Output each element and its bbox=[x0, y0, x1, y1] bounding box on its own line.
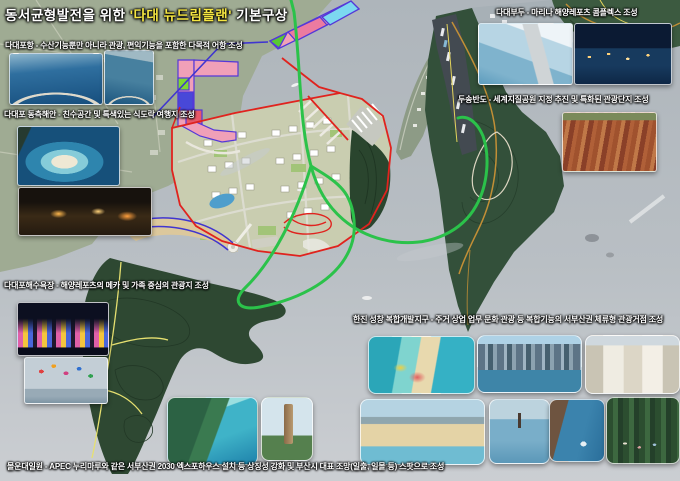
photo-observation-tower bbox=[261, 397, 313, 461]
photo-molundae-headland bbox=[167, 397, 258, 465]
photo-resort-waterpark bbox=[368, 336, 475, 394]
annotation-beach: 다대포해수욕장 - 해양레포츠의 메카 및 가족 중심의 관광지 조성 bbox=[4, 280, 209, 291]
page-title: 동서균형발전을 위한 '다대 뉴드림플랜' 기본구상 bbox=[5, 4, 288, 24]
photo-shopping-street bbox=[585, 335, 680, 394]
title-highlight: '다대 뉴드림플랜' bbox=[130, 8, 232, 23]
annotation-hanjin-seongchang: 한진 성창 복합개발지구 - 주거 상업 업무 문화 관광 등 복합기능의 서부… bbox=[353, 314, 663, 325]
annotation-east-coast: 다대포 동측해안 - 친수공간 및 특색있는 식도락 여행지 조성 bbox=[4, 109, 194, 120]
photo-marina-skyline bbox=[477, 335, 582, 393]
photo-dadaepo-harbor-aerial bbox=[9, 53, 103, 105]
photo-sunset-fountain bbox=[17, 302, 109, 356]
photo-harbor-vertical-aerial bbox=[104, 50, 154, 105]
photo-night-food-street bbox=[18, 187, 152, 236]
photo-kite-surfing bbox=[24, 357, 108, 404]
title-suffix: 기본구상 bbox=[232, 8, 288, 23]
annotation-dusong-peninsula: 두송반도 - 세계지질공원 지정 추진 및 특화된 관광단지 조성 bbox=[458, 94, 648, 105]
photo-paddle-boarding bbox=[489, 399, 550, 464]
title-prefix: 동서균형발전을 위한 bbox=[5, 8, 130, 23]
photo-forest-yoga bbox=[606, 397, 680, 464]
photo-geopark-cliff bbox=[562, 112, 657, 172]
masterplan-poster: 동서균형발전을 위한 '다대 뉴드림플랜' 기본구상 다대포항 - 수산기능뿐만… bbox=[0, 0, 680, 481]
photo-urban-beach bbox=[360, 399, 485, 465]
annotation-molundae: 몰운대일원 - APEC 누리마루와 같은 서부산권 2030 엑스포하우스 설… bbox=[7, 461, 444, 472]
annotation-dadaepo-port: 다대포항 - 수산기능뿐만 아니라 관광, 편익기능을 포함한 다목적 어항 조… bbox=[5, 40, 243, 51]
photo-marina-night bbox=[574, 23, 672, 85]
photo-marina-complex-render bbox=[478, 23, 573, 85]
photo-east-coast-cove bbox=[17, 126, 120, 186]
photo-cliff-diving bbox=[549, 399, 605, 462]
annotation-dadae-wharf: 다대부두 - 마리나 해양레포츠 콤플렉스 조성 bbox=[496, 7, 637, 18]
